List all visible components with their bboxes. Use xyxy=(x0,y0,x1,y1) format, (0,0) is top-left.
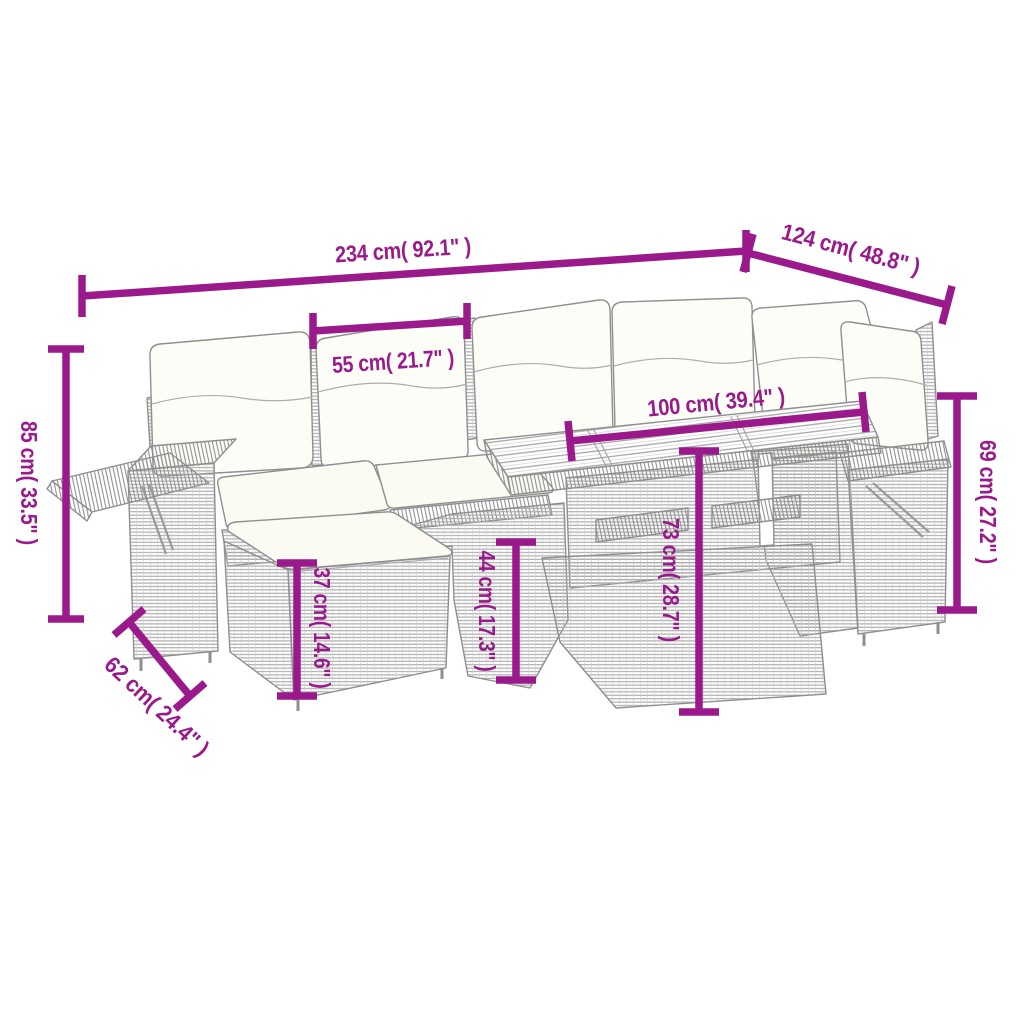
product-dimension-image: 234 cm( 92.1" ) 124 cm( 48.8" ) 55 cm( 2… xyxy=(0,0,1024,1024)
dimension-label: 62 cm( 24.4" ) xyxy=(99,651,214,761)
dimension-label: 69 cm( 27.2" ) xyxy=(975,440,1001,564)
dimension-diagram-svg: 234 cm( 92.1" ) 124 cm( 48.8" ) 55 cm( 2… xyxy=(0,0,1024,1024)
footstool xyxy=(224,512,452,711)
dimension-label: 234 cm( 92.1" ) xyxy=(334,233,471,268)
right-armrest-box xyxy=(848,459,948,634)
dimension-label: 44 cm( 17.3" ) xyxy=(474,551,500,672)
right-armrest xyxy=(840,441,951,646)
pillow xyxy=(316,317,468,468)
dimension-label: 73 cm( 28.7" ) xyxy=(658,518,684,642)
dimension-label: 37 cm( 14.6" ) xyxy=(309,568,335,689)
dimension-label: 85 cm( 33.5" ) xyxy=(16,421,42,545)
table-base xyxy=(542,452,840,708)
